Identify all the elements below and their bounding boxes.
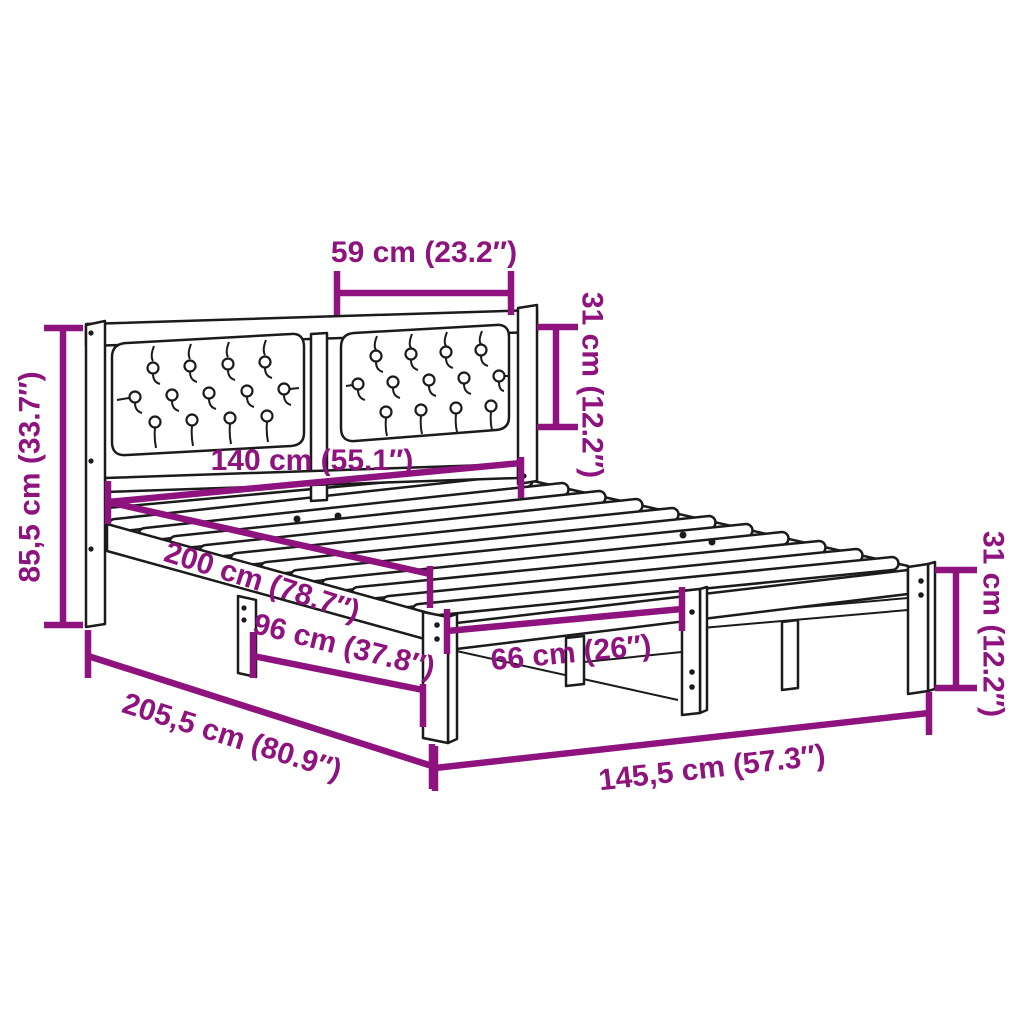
tuft-button	[262, 411, 273, 422]
tuft-button	[486, 401, 497, 412]
tuft-button	[225, 413, 236, 424]
tuft-button	[223, 359, 234, 370]
dim-label-cushion-width: 59 cm (23.2″)	[331, 236, 517, 269]
dimension-line	[337, 271, 511, 315]
dimension-line	[935, 570, 977, 688]
leg-screw	[241, 605, 246, 610]
bracket-screw	[294, 516, 301, 523]
leg-screw	[689, 684, 695, 690]
bracket-screw	[709, 539, 716, 546]
dim-label-frame-height: 31 cm (12.2″)	[977, 531, 1010, 717]
tuft-button	[424, 375, 435, 386]
bed-dimension-diagram: 59 cm (23.2″) 31 cm (12.2″) 140 cm (55.1…	[0, 0, 1024, 1024]
tuft-button	[381, 407, 392, 418]
tuft-button	[353, 379, 364, 390]
dim-label-headboard-height: 85,5 cm (33.7″)	[14, 371, 47, 582]
tuft-button	[406, 349, 417, 360]
tuft-button	[279, 384, 290, 395]
tuft-button	[459, 373, 470, 384]
post-screw	[88, 330, 93, 335]
dimension-line	[537, 327, 578, 427]
tuft-button	[148, 363, 159, 374]
headboard-left-post	[86, 321, 105, 627]
tuft-button	[167, 390, 178, 401]
dim-headboard-height: 85,5 cm (33.7″)	[14, 328, 84, 625]
dim-label-headboard-width: 140 cm (55.1″)	[211, 444, 414, 477]
dim-label-cushion-height: 31 cm (12.2″)	[576, 292, 609, 478]
leg-screw	[918, 592, 924, 598]
bracket-screw	[680, 532, 687, 539]
tuft-button	[260, 357, 271, 368]
dim-frame-height: 31 cm (12.2″)	[935, 531, 1010, 717]
tuft-button	[388, 377, 399, 388]
tuft-button	[204, 388, 215, 399]
dim-cushion-height: 31 cm (12.2″)	[537, 292, 609, 478]
post-screw	[88, 458, 93, 463]
leg-screw	[689, 609, 695, 615]
foot-right-leg	[908, 564, 928, 694]
leg-screw	[434, 622, 440, 628]
leg-screw	[434, 636, 440, 642]
diagram-canvas: 59 cm (23.2″) 31 cm (12.2″) 140 cm (55.1…	[0, 0, 1024, 1024]
tuft-button	[441, 347, 452, 358]
tuft-button	[494, 371, 505, 382]
leg-screw	[241, 617, 246, 622]
dimension-line	[44, 328, 83, 625]
cushion-left	[112, 334, 304, 455]
dim-cushion-width: 59 cm (23.2″)	[331, 236, 517, 315]
leg-screw	[918, 578, 924, 584]
cushion-right	[341, 325, 509, 441]
tuft-button	[371, 351, 382, 362]
tuft-button	[150, 417, 161, 428]
tuft-button	[416, 405, 427, 416]
bracket-screw	[335, 513, 342, 520]
tuft-button	[185, 361, 196, 372]
tuft-button	[187, 415, 198, 426]
tuft-button	[242, 386, 253, 397]
tuft-button	[451, 403, 462, 414]
post-screw	[88, 546, 93, 551]
tuft-button	[130, 392, 141, 403]
tuft-button	[476, 345, 487, 356]
leg-screw	[689, 669, 695, 675]
far-middle-leg	[782, 620, 798, 690]
